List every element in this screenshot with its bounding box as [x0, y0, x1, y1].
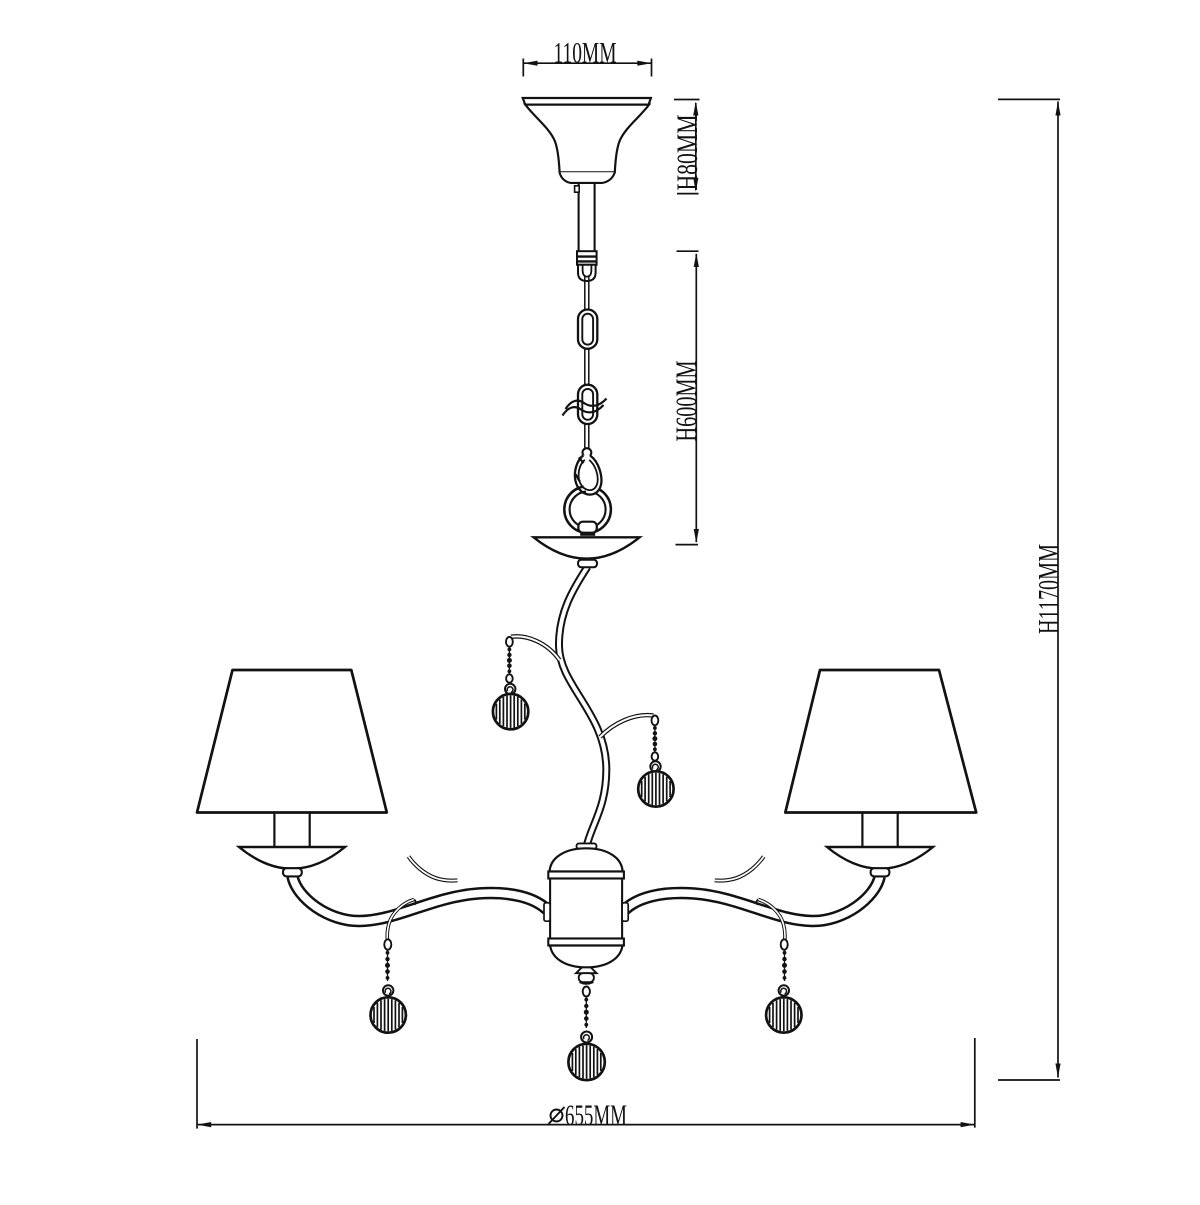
svg-text:H80MM: H80MM [672, 115, 704, 191]
svg-text:110MM: 110MM [554, 38, 617, 70]
svg-text:H600MM: H600MM [671, 361, 703, 442]
svg-text:655MM: 655MM [565, 1100, 627, 1132]
svg-text:H1170MM: H1170MM [1033, 544, 1066, 634]
